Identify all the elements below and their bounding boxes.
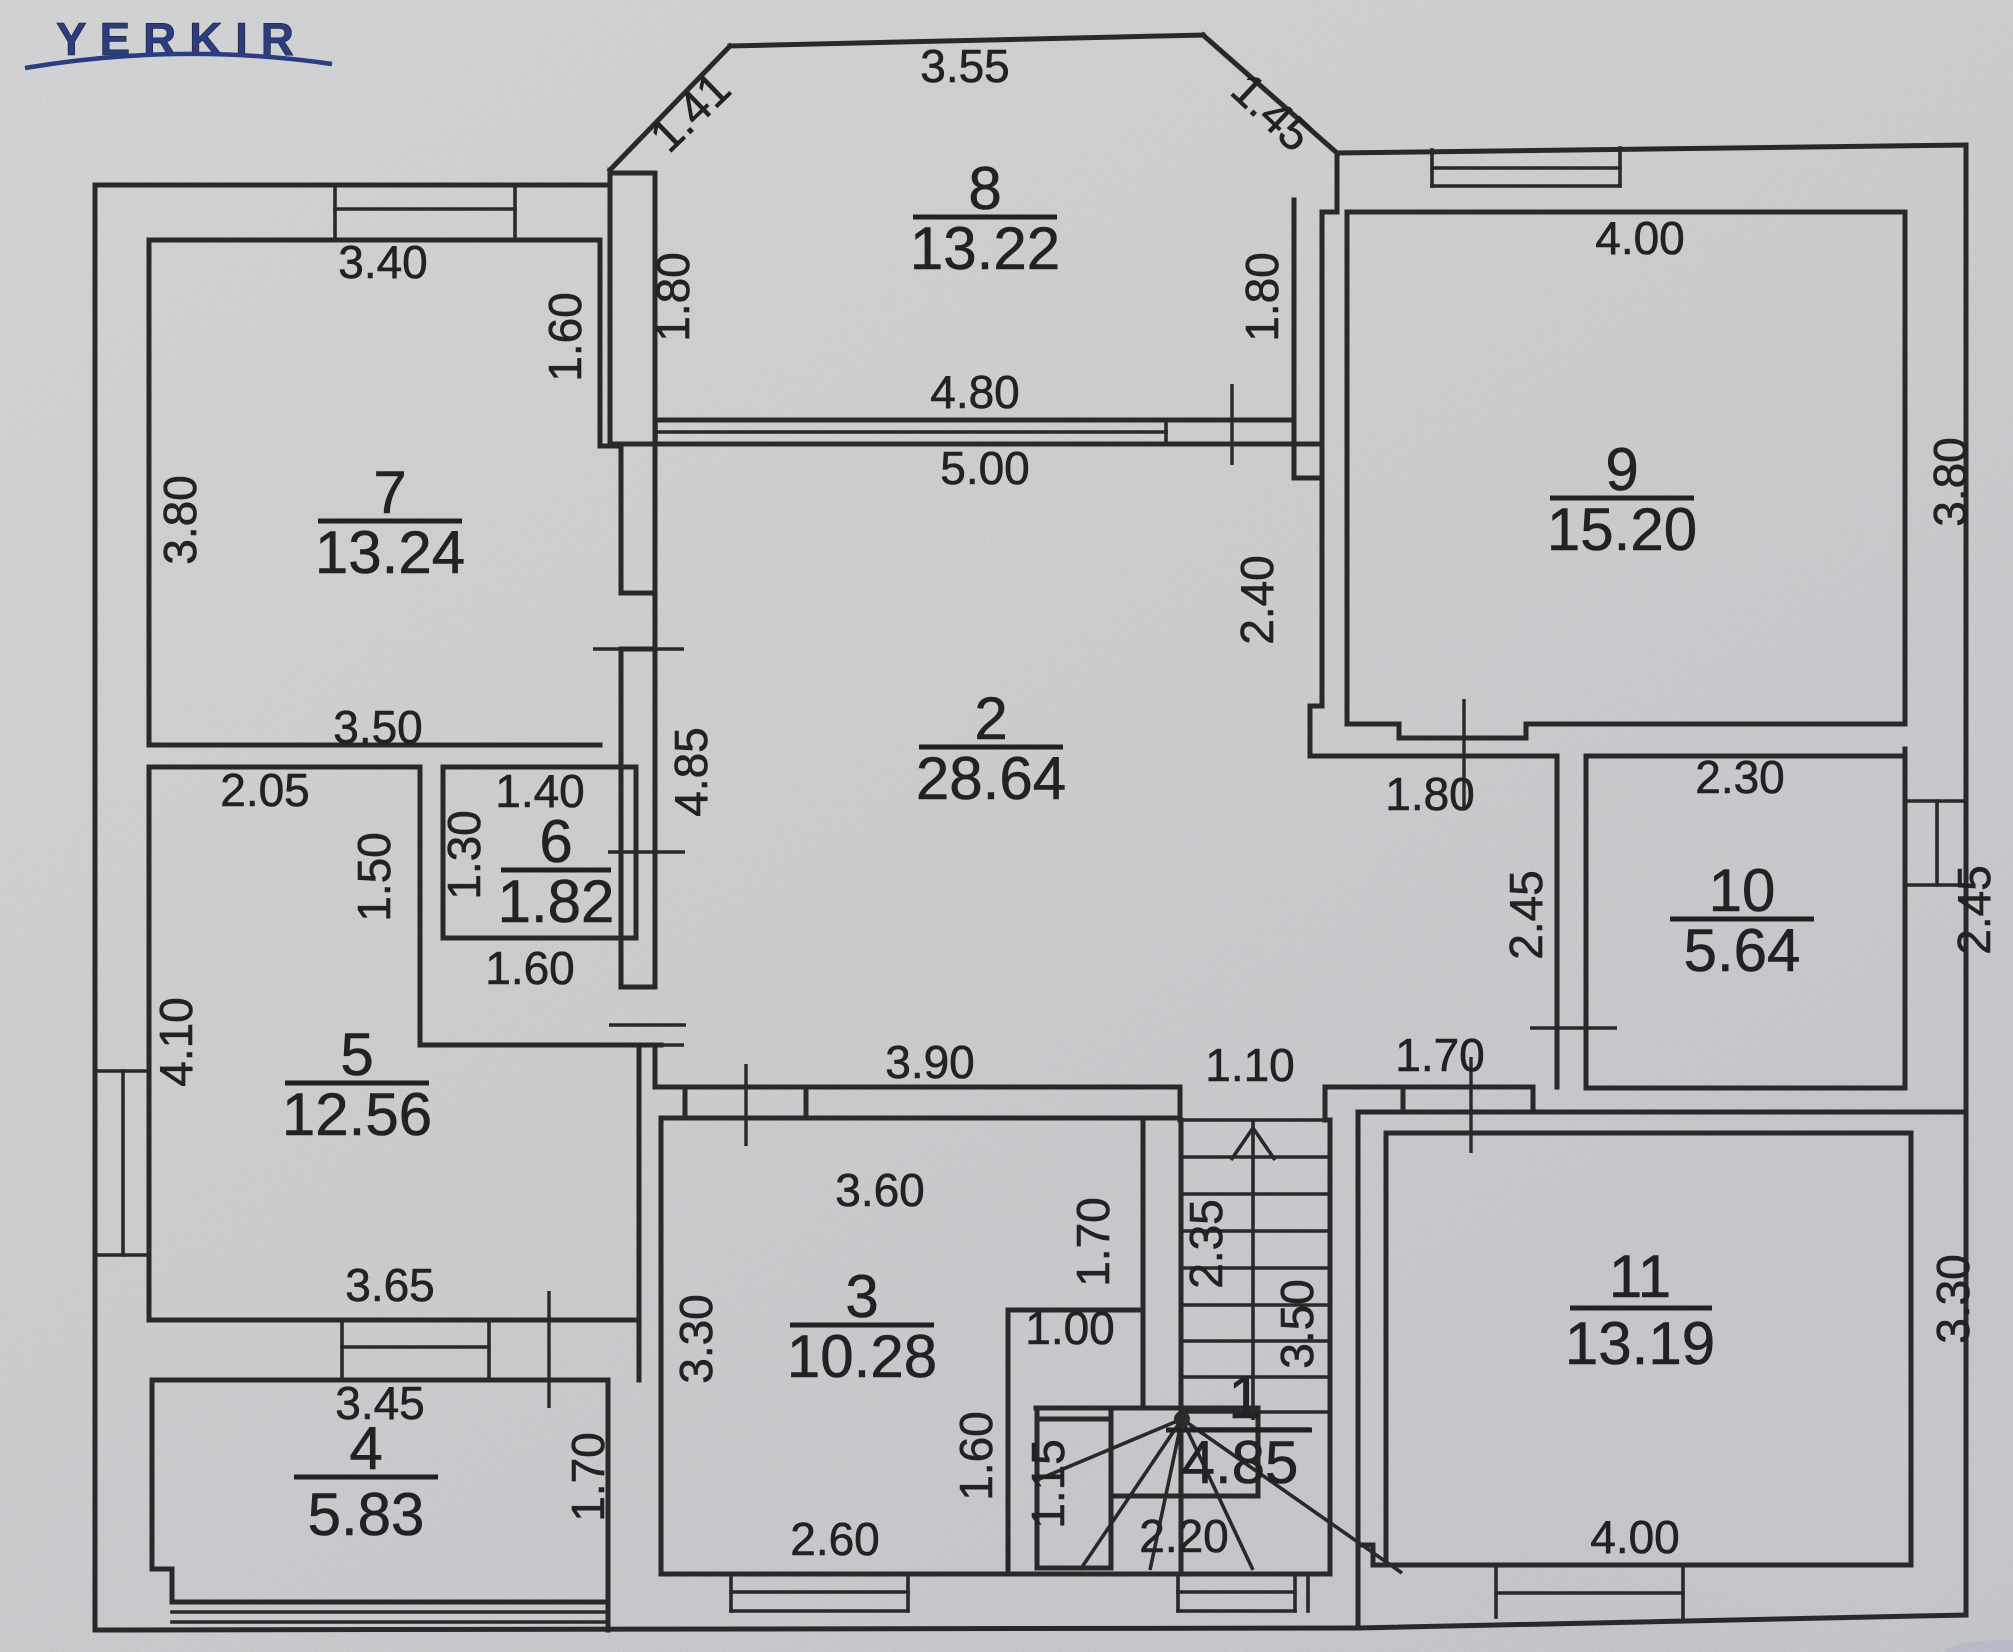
svg-text:5.00: 5.00 <box>940 442 1030 494</box>
svg-text:1.50: 1.50 <box>348 832 400 922</box>
svg-text:1.82: 1.82 <box>498 868 615 935</box>
svg-text:4.10: 4.10 <box>150 997 202 1087</box>
svg-text:5.64: 5.64 <box>1684 917 1801 984</box>
svg-text:13.19: 13.19 <box>1565 1310 1715 1377</box>
svg-text:4.85: 4.85 <box>1182 1429 1299 1496</box>
svg-text:8: 8 <box>968 155 1001 222</box>
svg-text:2.60: 2.60 <box>790 1513 880 1565</box>
svg-text:3: 3 <box>845 1263 878 1330</box>
svg-text:3.30: 3.30 <box>1927 1254 1979 1344</box>
svg-text:2.45: 2.45 <box>1500 870 1552 960</box>
svg-text:28.64: 28.64 <box>916 745 1066 812</box>
svg-text:2.35: 2.35 <box>1180 1199 1232 1289</box>
svg-text:1.30: 1.30 <box>438 810 490 900</box>
svg-text:1.15: 1.15 <box>1022 1439 1074 1529</box>
svg-text:3.40: 3.40 <box>338 236 428 288</box>
svg-text:1.80: 1.80 <box>647 252 699 342</box>
svg-text:10.28: 10.28 <box>787 1323 937 1390</box>
svg-text:1.10: 1.10 <box>1205 1039 1295 1091</box>
svg-text:6: 6 <box>539 808 572 875</box>
svg-text:2.45: 2.45 <box>1948 865 2000 955</box>
svg-text:1.70: 1.70 <box>1395 1029 1485 1081</box>
svg-text:3.55: 3.55 <box>920 40 1010 92</box>
svg-text:1.80: 1.80 <box>1236 252 1288 342</box>
svg-text:1.00: 1.00 <box>1025 1302 1115 1354</box>
svg-text:3.65: 3.65 <box>345 1259 435 1311</box>
svg-text:1.60: 1.60 <box>950 1411 1002 1501</box>
svg-text:2.20: 2.20 <box>1139 1510 1229 1562</box>
svg-text:1.60: 1.60 <box>539 292 591 382</box>
svg-text:3.50: 3.50 <box>1271 1279 1323 1369</box>
svg-text:15.20: 15.20 <box>1547 496 1697 563</box>
svg-text:3.80: 3.80 <box>1924 437 1976 527</box>
svg-text:12.56: 12.56 <box>282 1081 432 1148</box>
svg-text:5.83: 5.83 <box>308 1481 425 1548</box>
svg-text:5: 5 <box>340 1021 373 1088</box>
svg-text:1.70: 1.70 <box>562 1432 614 1522</box>
svg-text:3.60: 3.60 <box>835 1164 925 1216</box>
svg-text:2.30: 2.30 <box>1695 751 1785 803</box>
svg-text:1.80: 1.80 <box>1385 768 1475 820</box>
svg-text:2: 2 <box>974 685 1007 752</box>
svg-text:3.90: 3.90 <box>885 1036 975 1088</box>
svg-text:4.00: 4.00 <box>1590 1511 1680 1563</box>
svg-text:3.30: 3.30 <box>670 1294 722 1384</box>
svg-text:10: 10 <box>1709 857 1776 924</box>
svg-text:9: 9 <box>1605 436 1638 503</box>
svg-text:7: 7 <box>373 459 406 526</box>
svg-text:13.24: 13.24 <box>315 519 465 586</box>
svg-text:2.05: 2.05 <box>220 764 310 816</box>
svg-text:1.70: 1.70 <box>1067 1197 1119 1287</box>
svg-text:4.80: 4.80 <box>930 366 1020 418</box>
svg-text:2.40: 2.40 <box>1231 555 1283 645</box>
svg-text:4.85: 4.85 <box>665 727 717 817</box>
svg-text:4.00: 4.00 <box>1595 212 1685 264</box>
svg-text:1.60: 1.60 <box>485 942 575 994</box>
svg-text:1: 1 <box>1228 1364 1261 1431</box>
svg-text:3.80: 3.80 <box>154 475 206 565</box>
svg-text:4: 4 <box>349 1415 382 1482</box>
svg-text:13.22: 13.22 <box>910 215 1060 282</box>
svg-text:3.50: 3.50 <box>333 701 423 753</box>
svg-text:11: 11 <box>1609 1243 1671 1310</box>
